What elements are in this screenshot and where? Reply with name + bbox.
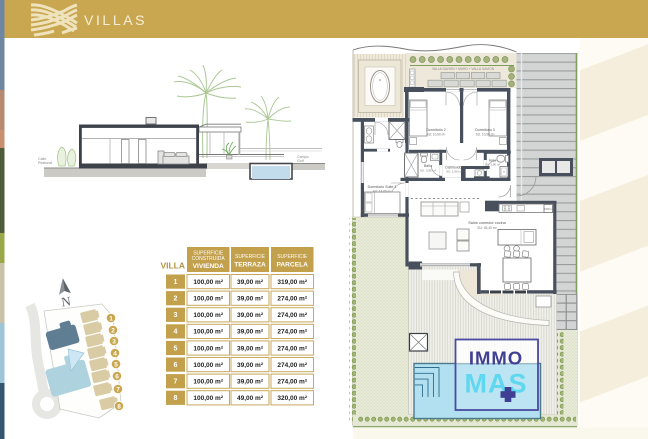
svg-text:SU: 3,85 m²: SU: 3,85 m²	[420, 169, 436, 173]
svg-text:39,00 m²: 39,00 m²	[237, 362, 264, 369]
svg-text:4: 4	[174, 329, 178, 336]
svg-text:SU: 14,65 m²: SU: 14,65 m²	[373, 190, 392, 194]
svg-text:SU: 1,90 m²: SU: 1,90 m²	[485, 163, 500, 167]
svg-text:39,00 m²: 39,00 m²	[237, 379, 264, 386]
svg-text:6: 6	[115, 373, 119, 380]
svg-text:100,00 m²: 100,00 m²	[193, 379, 223, 386]
svg-text:Peatonal: Peatonal	[38, 161, 52, 165]
svg-text:Salón comedor cocina: Salón comedor cocina	[468, 221, 506, 225]
svg-text:SU: 10,60 m²: SU: 10,60 m²	[476, 133, 495, 137]
svg-text:100,00 m²: 100,00 m²	[193, 312, 223, 319]
svg-text:274,00 m²: 274,00 m²	[277, 329, 307, 336]
svg-text:274,00 m²: 274,00 m²	[277, 312, 307, 319]
svg-text:VILLA: VILLA	[160, 261, 185, 271]
svg-text:VILLAS: VILLAS	[84, 12, 147, 28]
svg-text:Dormitorio 2: Dormitorio 2	[426, 128, 446, 132]
svg-text:8: 8	[174, 395, 178, 402]
svg-text:6: 6	[174, 362, 178, 369]
svg-text:320,00 m²: 320,00 m²	[277, 395, 307, 402]
svg-text:7: 7	[116, 386, 120, 393]
svg-text:4: 4	[113, 350, 117, 357]
svg-text:Baño: Baño	[424, 164, 432, 168]
svg-text:VALLA GAVION + MURO + VALLA GA: VALLA GAVION + MURO + VALLA GAVION	[432, 67, 495, 71]
svg-text:49,00 m²: 49,00 m²	[237, 395, 264, 402]
svg-text:SU: 10,60 m²: SU: 10,60 m²	[427, 133, 446, 137]
svg-text:100,00 m²: 100,00 m²	[193, 296, 223, 303]
svg-text:SU: 45,40 m²: SU: 45,40 m²	[477, 226, 497, 230]
svg-text:274,00 m²: 274,00 m²	[277, 296, 307, 303]
svg-text:39,00 m²: 39,00 m²	[237, 279, 264, 286]
svg-text:319,00 m²: 319,00 m²	[277, 279, 307, 286]
svg-text:5: 5	[114, 361, 118, 368]
svg-text:SUPERFICIE: SUPERFICIE	[235, 254, 266, 260]
svg-text:274,00 m²: 274,00 m²	[277, 379, 307, 386]
svg-text:3: 3	[174, 312, 178, 319]
svg-text:PARCELA: PARCELA	[277, 262, 309, 269]
svg-text:5: 5	[174, 345, 178, 352]
svg-text:100,00 m²: 100,00 m²	[193, 345, 223, 352]
svg-text:SUPERFICIE: SUPERFICIE	[277, 254, 308, 260]
svg-text:VIVIENDA: VIVIENDA	[193, 263, 224, 270]
svg-text:100,00 m²: 100,00 m²	[193, 395, 223, 402]
svg-text:2: 2	[174, 296, 178, 303]
svg-text:1: 1	[174, 279, 178, 286]
svg-text:8: 8	[117, 403, 121, 410]
svg-text:TERRAZA: TERRAZA	[234, 262, 266, 269]
svg-text:3: 3	[112, 338, 116, 345]
svg-text:1: 1	[109, 315, 113, 322]
svg-text:7: 7	[174, 379, 178, 386]
svg-text:39,00 m²: 39,00 m²	[237, 296, 264, 303]
svg-text:IMMO: IMMO	[469, 348, 523, 369]
svg-text:Dormitorio 3: Dormitorio 3	[475, 128, 495, 132]
svg-text:274,00 m²: 274,00 m²	[277, 362, 307, 369]
svg-text:CONSTRUIDA: CONSTRUIDA	[192, 256, 226, 262]
svg-text:274,00 m²: 274,00 m²	[277, 345, 307, 352]
svg-text:Golf: Golf	[297, 159, 304, 163]
svg-text:2: 2	[111, 327, 115, 334]
svg-text:100,00 m²: 100,00 m²	[193, 279, 223, 286]
svg-text:39,00 m²: 39,00 m²	[237, 329, 264, 336]
svg-text:Dormitorio Suite 1: Dormitorio Suite 1	[368, 185, 397, 189]
svg-text:SU: 1,60 m²: SU: 1,60 m²	[446, 170, 462, 174]
svg-text:100,00 m²: 100,00 m²	[193, 362, 223, 369]
svg-text:MAS: MAS	[465, 369, 528, 399]
svg-text:39,00 m²: 39,00 m²	[237, 345, 264, 352]
svg-text:100,00 m²: 100,00 m²	[193, 329, 223, 336]
svg-text:FRIG: FRIG	[544, 207, 552, 211]
svg-text:39,00 m²: 39,00 m²	[237, 312, 264, 319]
